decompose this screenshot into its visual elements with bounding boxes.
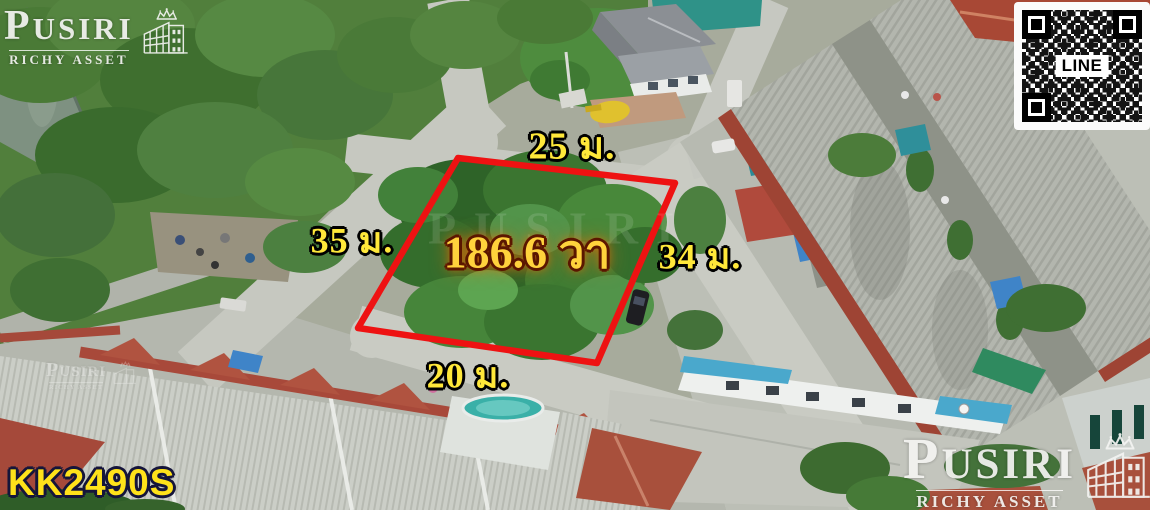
brand-name: PUSIRI [4,6,134,48]
qr-finder-bottom-left [1022,93,1051,122]
brand-building-icon [140,6,192,58]
dimension-label-right: 34 ม. [659,228,742,285]
qr-finder-top-right [1113,10,1142,39]
dimension-label-left: 35 ม. [311,212,394,269]
brand-subtitle: RICHY ASSET [916,490,1062,510]
dimension-label-top: 25 ม. [528,115,615,176]
brand-subtitle: RICHY ASSET [9,50,129,66]
qr-line-label: LINE [1056,55,1109,77]
line-qr-code: LINE [1014,2,1150,130]
plot-area-label: 186.6 วา [444,216,611,289]
brand-name: PUSIRI [903,430,1076,488]
mini-watermark-logo: PUSIRI RICHY ASSET [46,360,138,392]
qr-finder-top-left [1022,10,1051,39]
brand-building-icon [1082,430,1150,504]
land-listing-photo: PUSIRI PUSIRI RICHY ASSET [0,0,1150,510]
brand-logo-top-left: PUSIRI RICHY ASSET [4,6,192,66]
listing-code-label: KK2490S [8,462,175,504]
brand-logo-bottom-right: PUSIRI RICHY ASSET [903,430,1150,510]
brand-building-icon [112,360,138,386]
dimension-label-bottom: 20 ม. [427,347,510,404]
